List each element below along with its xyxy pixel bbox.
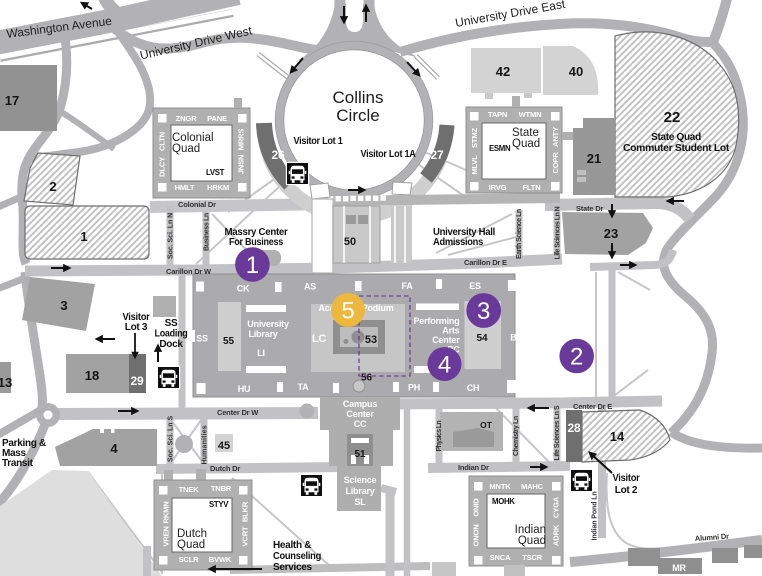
svg-text:Business Ln: Business Ln	[204, 213, 211, 251]
svg-text:Chemistry Ln: Chemistry Ln	[513, 416, 520, 456]
svg-text:BI: BI	[510, 333, 519, 343]
svg-text:Soc. Sci. Ln N: Soc. Sci. Ln N	[168, 213, 175, 259]
svg-text:Center Dr E: Center Dr E	[573, 402, 612, 411]
svg-text:Physics Ln: Physics Ln	[436, 421, 443, 452]
svg-text:ES: ES	[469, 281, 481, 291]
svg-text:TA: TA	[298, 382, 310, 392]
svg-text:Life Sciences Ln S: Life Sciences Ln S	[554, 405, 561, 461]
svg-text:WTMN: WTMN	[519, 110, 542, 119]
svg-text:ONON: ONON	[472, 525, 481, 547]
svg-text:Arts: Arts	[442, 326, 459, 336]
svg-text:University: University	[247, 319, 289, 329]
svg-text:50: 50	[344, 236, 356, 248]
svg-text:Visitor Lot 1A: Visitor Lot 1A	[361, 149, 416, 160]
svg-text:Loading: Loading	[155, 329, 188, 340]
svg-text:HU: HU	[238, 384, 251, 394]
svg-text:ONID: ONID	[472, 498, 481, 517]
svg-text:SNCA: SNCA	[490, 553, 511, 562]
svg-text:SS: SS	[165, 318, 178, 329]
svg-text:18: 18	[85, 368, 99, 383]
svg-text:42: 42	[496, 64, 510, 79]
svg-text:LC: LC	[312, 333, 327, 345]
svg-text:LVST: LVST	[206, 168, 225, 177]
svg-text:IRVG: IRVG	[489, 183, 507, 192]
svg-text:SS: SS	[196, 334, 208, 344]
svg-text:TNEK: TNEK	[179, 485, 200, 494]
svg-text:Center Dr W: Center Dr W	[217, 408, 259, 417]
svg-text:MOHK: MOHK	[492, 497, 515, 506]
svg-text:3: 3	[60, 298, 67, 313]
svg-text:21: 21	[587, 151, 601, 166]
svg-text:Quad: Quad	[177, 539, 205, 551]
svg-text:SCLR: SCLR	[179, 555, 200, 564]
svg-text:STYV: STYV	[209, 500, 229, 509]
svg-text:Dutch Dr: Dutch Dr	[210, 464, 240, 473]
svg-text:1: 1	[80, 229, 87, 244]
svg-text:STMZ: STMZ	[470, 128, 479, 148]
svg-text:1: 1	[246, 252, 259, 279]
svg-text:MNTK: MNTK	[489, 482, 511, 491]
svg-text:MLVL: MLVL	[470, 155, 479, 175]
svg-text:CLTN: CLTN	[158, 132, 167, 151]
svg-text:ANTY: ANTY	[551, 127, 560, 147]
svg-text:Visitor: Visitor	[613, 473, 640, 484]
svg-text:23: 23	[604, 226, 618, 241]
svg-text:Transit: Transit	[2, 458, 34, 469]
svg-text:Earth Science Ln: Earth Science Ln	[516, 209, 523, 259]
svg-text:Center: Center	[432, 335, 460, 345]
svg-text:27: 27	[431, 148, 444, 162]
svg-text:28: 28	[568, 421, 581, 435]
svg-text:40: 40	[569, 64, 583, 79]
svg-text:SL: SL	[354, 497, 366, 507]
svg-text:TSCR: TSCR	[522, 553, 543, 562]
svg-text:FA: FA	[401, 281, 413, 291]
svg-text:Commuter Student Lot: Commuter Student Lot	[623, 143, 730, 154]
svg-text:51: 51	[354, 449, 366, 460]
svg-text:LI: LI	[257, 348, 265, 358]
svg-text:MRRS: MRRS	[237, 129, 246, 151]
svg-text:54: 54	[476, 333, 488, 344]
svg-text:Life Sciences Ln N: Life Sciences Ln N	[555, 206, 562, 259]
svg-text:FLTN: FLTN	[522, 183, 540, 192]
svg-text:Library: Library	[345, 486, 374, 496]
svg-text:Dock: Dock	[159, 339, 183, 350]
svg-text:State Quad: State Quad	[651, 132, 701, 143]
svg-text:Science: Science	[344, 475, 377, 485]
svg-text:Collins: Collins	[332, 88, 383, 107]
svg-text:VCRT: VCRT	[241, 526, 250, 546]
svg-text:TAPN: TAPN	[488, 110, 507, 119]
svg-text:Quad: Quad	[512, 138, 540, 150]
svg-text:Humanities: Humanities	[202, 425, 209, 464]
svg-text:5: 5	[341, 298, 354, 325]
svg-text:DLCY: DLCY	[158, 157, 167, 177]
svg-text:State Dr: State Dr	[576, 204, 603, 213]
svg-text:VREN: VREN	[162, 526, 171, 546]
svg-text:BLKR: BLKR	[241, 501, 250, 522]
svg-text:55: 55	[223, 336, 235, 347]
svg-text:Admissions: Admissions	[433, 237, 484, 248]
svg-text:Performing: Performing	[413, 316, 459, 326]
svg-text:22: 22	[664, 109, 681, 126]
svg-text:Visitor Lot 1: Visitor Lot 1	[294, 136, 344, 147]
svg-text:For Business: For Business	[229, 237, 284, 248]
svg-text:53: 53	[365, 334, 377, 346]
svg-text:4: 4	[110, 441, 118, 456]
svg-text:CC: CC	[354, 419, 367, 429]
svg-text:Soc. Sci. Ln S: Soc. Sci. Ln S	[168, 415, 175, 462]
svg-text:Quad: Quad	[172, 143, 200, 155]
svg-text:Center: Center	[346, 409, 374, 419]
svg-text:14: 14	[610, 429, 625, 444]
svg-text:Indian Pond Ln: Indian Pond Ln	[592, 492, 599, 541]
svg-text:Library: Library	[248, 329, 277, 339]
svg-text:ESMN: ESMN	[489, 144, 511, 153]
svg-text:56: 56	[361, 373, 373, 384]
svg-text:HRKM: HRKM	[207, 183, 229, 192]
svg-text:BVWK: BVWK	[209, 555, 232, 564]
svg-text:ADRK: ADRK	[552, 524, 561, 546]
svg-text:PANE: PANE	[207, 114, 227, 123]
svg-text:Indian Dr: Indian Dr	[458, 463, 489, 472]
svg-text:AS: AS	[304, 282, 316, 292]
svg-text:HMLT: HMLT	[175, 183, 195, 192]
svg-text:Lot 2: Lot 2	[615, 485, 638, 496]
svg-text:Circle: Circle	[336, 106, 379, 125]
svg-text:Campus: Campus	[343, 399, 378, 409]
svg-text:26: 26	[272, 148, 285, 162]
svg-text:RKMN: RKMN	[162, 502, 171, 524]
svg-text:Carillon Dr E: Carillon Dr E	[464, 258, 507, 267]
svg-text:17: 17	[5, 93, 19, 108]
svg-text:13: 13	[0, 375, 12, 390]
svg-text:JNSN: JNSN	[237, 155, 246, 174]
svg-text:2: 2	[570, 344, 583, 371]
svg-text:Counseling: Counseling	[273, 551, 321, 562]
svg-text:OT: OT	[480, 420, 493, 430]
svg-text:TNBR: TNBR	[211, 484, 232, 493]
svg-text:Carillon Dr W: Carillon Dr W	[166, 267, 212, 276]
svg-text:ZNGR: ZNGR	[176, 114, 197, 123]
svg-text:MR: MR	[672, 563, 686, 573]
svg-text:29: 29	[131, 374, 144, 388]
svg-text:MAHC: MAHC	[521, 482, 544, 491]
svg-text:Quad: Quad	[518, 535, 546, 547]
svg-text:PH: PH	[408, 383, 420, 393]
svg-text:CK: CK	[237, 284, 250, 294]
svg-text:CH: CH	[467, 383, 480, 393]
svg-text:CYGA: CYGA	[552, 496, 561, 518]
svg-text:4: 4	[438, 352, 451, 379]
svg-text:2: 2	[49, 179, 56, 194]
svg-text:3: 3	[477, 298, 490, 325]
svg-text:Colonial Dr: Colonial Dr	[178, 200, 216, 209]
svg-text:Health &: Health &	[273, 540, 311, 551]
svg-text:COPR: COPR	[551, 152, 560, 174]
svg-text:45: 45	[218, 440, 230, 452]
svg-text:Services: Services	[273, 562, 312, 573]
svg-text:Lot 3: Lot 3	[125, 322, 148, 333]
